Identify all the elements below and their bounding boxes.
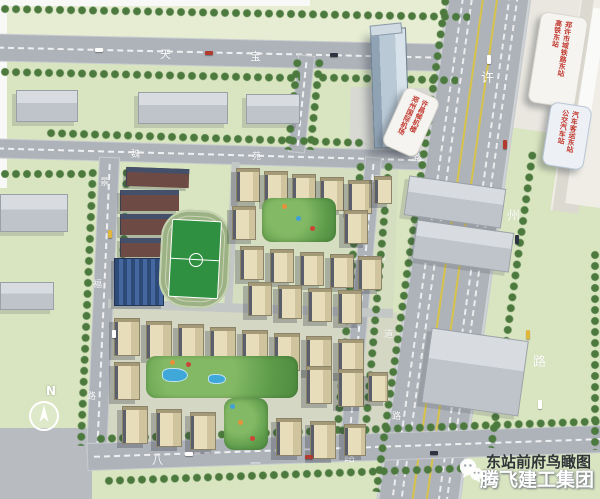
car <box>205 51 213 55</box>
residential-tower <box>146 321 172 359</box>
residential-tower <box>300 252 324 286</box>
residential-tower <box>368 372 388 402</box>
sports-field <box>168 219 222 300</box>
residential-tower <box>240 246 264 280</box>
residential-tower <box>308 288 332 322</box>
road-label-char: 景 <box>100 178 109 188</box>
road-label-char: 路 <box>533 358 546 368</box>
car <box>330 53 338 57</box>
playground-feature <box>230 404 235 409</box>
white-margin-left <box>0 0 7 188</box>
road-label-char: 许 <box>481 74 494 84</box>
road-label-char: 一 <box>250 459 261 469</box>
road-label-char: 魏 <box>131 150 140 160</box>
playground-feature <box>170 360 175 365</box>
tree-column <box>590 250 600 450</box>
school-building <box>126 167 190 188</box>
water-feature <box>208 374 226 384</box>
residential-tower <box>236 168 260 202</box>
residential-tower <box>330 254 354 288</box>
residential-tower <box>344 210 368 244</box>
car <box>305 455 313 459</box>
playground-feature <box>186 362 191 367</box>
car <box>526 330 530 339</box>
playground-feature <box>296 216 301 221</box>
warehouse <box>16 90 78 122</box>
water-feature <box>162 368 188 382</box>
car <box>185 452 193 456</box>
warehouse <box>0 194 68 232</box>
playground-feature <box>238 420 243 425</box>
road-label-char: 天 <box>160 50 171 60</box>
residential-tower <box>338 369 364 407</box>
road-label-char: 宝 <box>250 52 261 62</box>
residential-tower <box>122 406 148 444</box>
residential-tower <box>374 176 392 204</box>
road-label-char: 路 <box>392 412 401 422</box>
aerial-masterplan-rendering: 天 宝 路 魏 苑 路 景 福 路 规 划 道 路 许 州 路 八 一 路 <box>0 0 600 499</box>
car <box>503 140 507 149</box>
warehouse <box>138 92 228 124</box>
residential-tower <box>338 290 362 324</box>
tree-row <box>0 67 300 83</box>
car <box>515 235 519 244</box>
residential-tower <box>276 418 302 456</box>
wechat-icon <box>458 457 484 485</box>
compass-icon <box>26 398 62 434</box>
residential-tower <box>190 412 216 450</box>
road-label-char: 道 <box>384 330 393 340</box>
warehouse <box>421 328 529 417</box>
car <box>108 230 112 238</box>
residential-tower <box>358 256 382 290</box>
residential-tower <box>232 206 256 240</box>
compass-north-label: N <box>46 384 56 398</box>
residential-tower <box>248 282 272 316</box>
car <box>95 48 103 52</box>
residential-tower <box>114 318 140 356</box>
watermark-company: 腾飞建工集团 <box>480 465 594 492</box>
tree-row <box>0 169 90 179</box>
playground-feature <box>250 436 255 441</box>
playground-feature <box>282 204 287 209</box>
school-building <box>120 190 179 211</box>
warehouse <box>246 94 300 124</box>
residential-tower <box>270 249 294 283</box>
running-track <box>157 208 232 310</box>
car <box>538 400 542 409</box>
residential-tower <box>348 180 372 214</box>
road-label-char: 福 <box>93 280 102 290</box>
residential-tower <box>310 421 336 459</box>
warehouse <box>0 282 54 310</box>
residential-tower <box>306 366 332 404</box>
residential-tower <box>344 424 366 456</box>
road-label-char: 八 <box>152 456 163 466</box>
car <box>487 55 491 64</box>
road-label-char: 路 <box>87 392 96 402</box>
residential-tower <box>114 362 140 400</box>
car <box>430 451 438 455</box>
field-center-circle <box>189 253 204 268</box>
school-solar-roof-building <box>114 258 164 306</box>
playground-feature <box>310 226 315 231</box>
residential-tower <box>156 409 182 447</box>
car <box>112 330 116 338</box>
road-label-char: 苑 <box>252 152 261 162</box>
residential-tower <box>278 285 302 319</box>
